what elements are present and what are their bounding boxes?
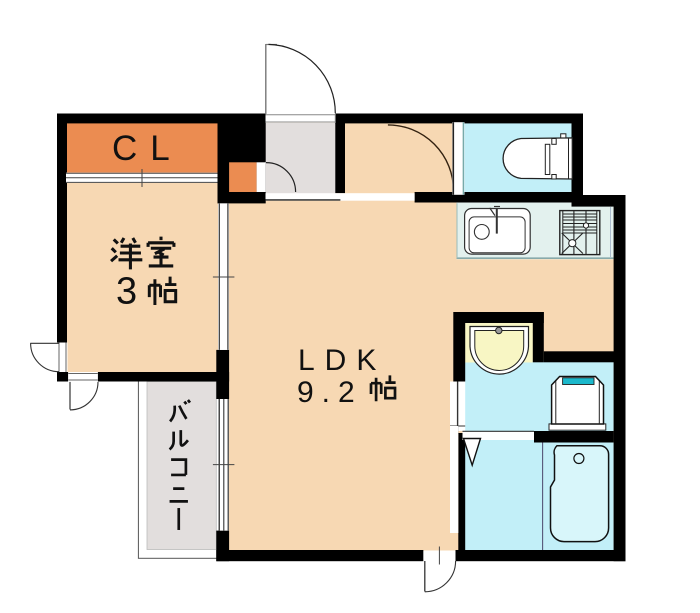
svg-text:LDK: LDK — [298, 344, 386, 377]
svg-text:CL: CL — [112, 129, 183, 168]
svg-text:3: 3 — [116, 271, 137, 313]
svg-text:9.2: 9.2 — [297, 376, 363, 409]
